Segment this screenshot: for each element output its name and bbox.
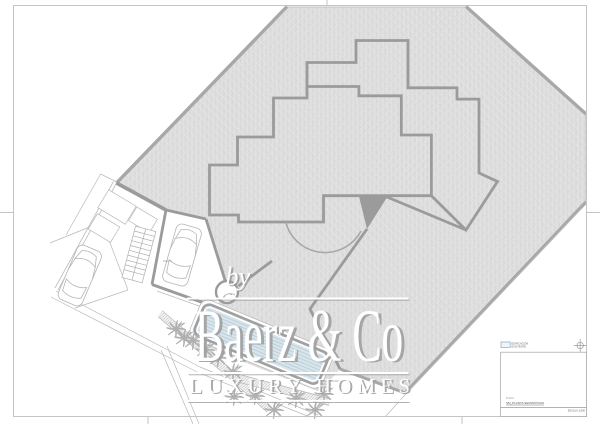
svg-text:by: by (226, 262, 251, 291)
svg-text:PLANO: PLANO (506, 397, 514, 400)
svg-text:EXISTENTE: EXISTENTE (512, 345, 527, 349)
svg-text:Plaza 1: Plaza 1 (163, 259, 172, 263)
svg-text:Baerz & Co: Baerz & Co (195, 295, 403, 378)
svg-text:ESCALA 1/200: ESCALA 1/200 (568, 408, 586, 412)
svg-text:SM_PLANTA SEMISÓTANO: SM_PLANTA SEMISÓTANO (506, 400, 545, 405)
